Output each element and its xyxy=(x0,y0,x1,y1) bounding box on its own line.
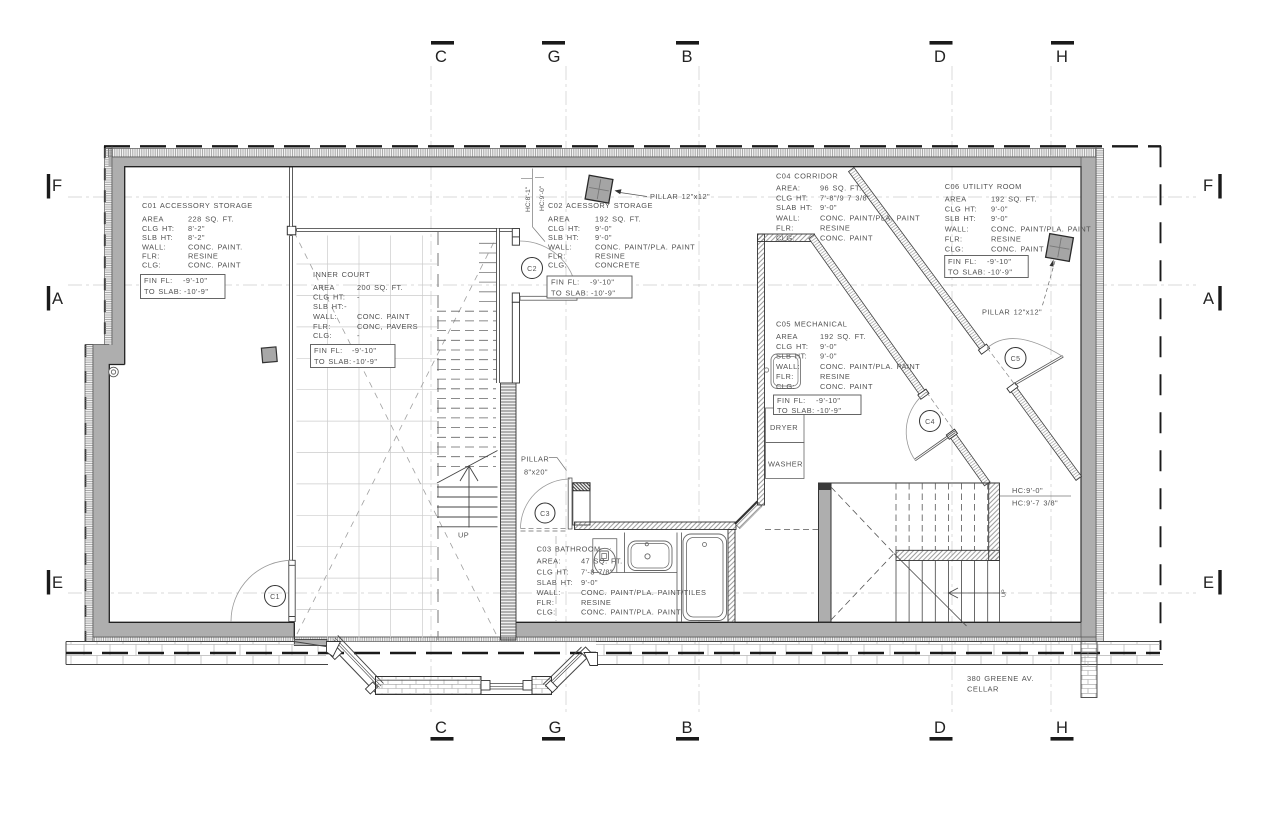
svg-text:CLG HT:: CLG HT: xyxy=(945,205,977,214)
svg-text:CLG:: CLG: xyxy=(776,382,795,391)
svg-text:G: G xyxy=(549,719,562,737)
svg-text:E: E xyxy=(1203,574,1214,592)
svg-text:AREA: AREA xyxy=(945,195,967,204)
svg-text:9'-0": 9'-0" xyxy=(820,352,837,361)
svg-text:FLR:: FLR: xyxy=(313,322,331,331)
svg-text:FIN FL:: FIN FL: xyxy=(144,276,173,285)
svg-text:HC:8'-1": HC:8'-1" xyxy=(525,186,532,212)
svg-text:CONC. PAINT: CONC. PAINT xyxy=(357,312,410,321)
svg-text:DRYER: DRYER xyxy=(770,423,798,432)
svg-text:CLG HT:: CLG HT: xyxy=(776,342,808,351)
svg-text:C: C xyxy=(435,719,447,737)
svg-text:UP: UP xyxy=(1002,589,1008,597)
svg-text:SLB HT:: SLB HT: xyxy=(776,352,807,361)
svg-text:CLG:: CLG: xyxy=(776,234,795,243)
svg-text:TO SLAB:: TO SLAB: xyxy=(948,268,986,277)
svg-text:A: A xyxy=(1203,290,1214,308)
svg-text:CLG HT:: CLG HT: xyxy=(142,224,174,233)
svg-text:-10'-9": -10'-9" xyxy=(817,406,841,415)
svg-text:C01 ACCESSORY STORAGE: C01 ACCESSORY STORAGE xyxy=(142,201,253,210)
svg-text:C05 MECHANICAL: C05 MECHANICAL xyxy=(776,320,847,329)
svg-text:-10'-9": -10'-9" xyxy=(988,268,1012,277)
svg-text:FIN FL:: FIN FL: xyxy=(551,278,580,287)
svg-text:SLAB HT:: SLAB HT: xyxy=(537,578,574,587)
svg-text:-9'-10": -9'-10" xyxy=(352,346,376,355)
svg-text:HC:9'-0": HC:9'-0" xyxy=(1012,486,1043,495)
svg-text:9'-0": 9'-0" xyxy=(581,578,598,587)
svg-text:228 SQ. FT.: 228 SQ. FT. xyxy=(188,215,234,224)
svg-text:PILLAR: PILLAR xyxy=(521,455,549,464)
svg-text:C2: C2 xyxy=(527,266,537,273)
svg-text:CLG:: CLG: xyxy=(945,245,964,254)
svg-text:CONC. PAINT/PLA. PAINT/TILES: CONC. PAINT/PLA. PAINT/TILES xyxy=(581,588,706,597)
svg-text:47 SQ. FT.: 47 SQ. FT. xyxy=(581,557,623,566)
svg-text:-10'-9": -10'-9" xyxy=(591,289,615,298)
svg-text:FLR:: FLR: xyxy=(142,252,160,261)
svg-text:HC:9'-7 3/8": HC:9'-7 3/8" xyxy=(1012,499,1058,508)
svg-text:TO SLAB:: TO SLAB: xyxy=(551,289,589,298)
svg-text:RESINE: RESINE xyxy=(188,252,218,261)
svg-text:CLG:: CLG: xyxy=(537,608,556,617)
svg-text:WALL:: WALL: xyxy=(548,243,572,252)
svg-text:WALL:: WALL: xyxy=(945,225,969,234)
svg-text:CONC. PAINT/PLA. PAINT: CONC. PAINT/PLA. PAINT xyxy=(991,225,1091,234)
svg-text:CONC. PAINT: CONC. PAINT xyxy=(188,261,241,270)
svg-text:SLB HT:: SLB HT: xyxy=(945,214,976,223)
svg-text:FLR:: FLR: xyxy=(945,235,963,244)
svg-text:CELLAR: CELLAR xyxy=(967,685,999,694)
svg-text:B: B xyxy=(681,48,692,66)
svg-text:AREA: AREA xyxy=(548,215,570,224)
svg-text:FLR:: FLR: xyxy=(776,224,794,233)
svg-text:C04 CORRIDOR: C04 CORRIDOR xyxy=(776,172,838,181)
svg-text:7'-8"/9 7 3/8": 7'-8"/9 7 3/8" xyxy=(820,194,870,203)
svg-text:-: - xyxy=(357,331,360,340)
svg-text:WALL:: WALL: xyxy=(537,588,561,597)
svg-text:CONCRETE: CONCRETE xyxy=(595,261,640,270)
svg-text:C06 UTILITY ROOM: C06 UTILITY ROOM xyxy=(945,182,1022,191)
svg-text:C1: C1 xyxy=(270,594,280,601)
svg-text:FIN FL:: FIN FL: xyxy=(948,257,977,266)
svg-text:FLR:: FLR: xyxy=(537,598,555,607)
svg-text:-9'-10": -9'-10" xyxy=(183,276,207,285)
svg-text:WASHER: WASHER xyxy=(768,460,803,469)
svg-text:CLG HT:: CLG HT: xyxy=(548,224,580,233)
svg-text:9'-0": 9'-0" xyxy=(820,203,837,212)
svg-text:380 GREENE AV.: 380 GREENE AV. xyxy=(967,674,1034,683)
svg-text:-9'-10": -9'-10" xyxy=(590,278,614,287)
svg-text:TO SLAB:: TO SLAB: xyxy=(314,357,352,366)
svg-text:FIN FL:: FIN FL: xyxy=(314,346,343,355)
svg-text:RESINE: RESINE xyxy=(595,252,625,261)
svg-text:E: E xyxy=(52,574,63,592)
svg-text:TO SLAB:: TO SLAB: xyxy=(777,406,815,415)
svg-text:-9'-10": -9'-10" xyxy=(987,257,1011,266)
svg-text:AREA:: AREA: xyxy=(537,557,561,566)
svg-text:PILLAR 12"x12": PILLAR 12"x12" xyxy=(650,192,710,201)
svg-text:CLG:: CLG: xyxy=(313,331,332,340)
svg-text:H: H xyxy=(1056,48,1068,66)
svg-text:FLR:: FLR: xyxy=(548,252,566,261)
svg-text:HC:9'-0": HC:9'-0" xyxy=(539,185,546,211)
svg-text:C02 ACESSORY STORAGE: C02 ACESSORY STORAGE xyxy=(548,201,653,210)
svg-text:192 SQ. FT.: 192 SQ. FT. xyxy=(820,332,866,341)
svg-text:RESINE: RESINE xyxy=(581,598,611,607)
svg-text:D: D xyxy=(934,719,946,737)
svg-text:TO SLAB:: TO SLAB: xyxy=(144,287,182,296)
svg-text:C03 BATHROOM: C03 BATHROOM xyxy=(537,545,601,554)
svg-text:9'-0": 9'-0" xyxy=(991,205,1008,214)
svg-text:8'-2": 8'-2" xyxy=(188,224,205,233)
svg-text:CONC. PAINT: CONC. PAINT xyxy=(820,382,873,391)
svg-text:F: F xyxy=(1203,177,1213,195)
svg-text:8'-2": 8'-2" xyxy=(188,233,205,242)
svg-text:RESINE: RESINE xyxy=(991,235,1021,244)
svg-text:192 SQ. FT.: 192 SQ. FT. xyxy=(595,215,641,224)
svg-text:AREA: AREA xyxy=(142,215,164,224)
svg-text:RESINE: RESINE xyxy=(820,372,850,381)
svg-text:7'-8 7/8": 7'-8 7/8" xyxy=(581,568,613,577)
svg-text:CONC, PAVERS: CONC, PAVERS xyxy=(357,322,418,331)
svg-text:CLG HT:: CLG HT: xyxy=(313,293,345,302)
svg-text:H: H xyxy=(1056,719,1068,737)
svg-text:8"x20": 8"x20" xyxy=(524,468,548,477)
svg-text:FIN FL:: FIN FL: xyxy=(777,396,806,405)
svg-text:C5: C5 xyxy=(1011,356,1021,363)
svg-text:WALL:: WALL: xyxy=(776,214,800,223)
svg-text:9'-0": 9'-0" xyxy=(820,342,837,351)
svg-text:PILLAR 12"x12": PILLAR 12"x12" xyxy=(982,308,1042,317)
svg-text:WALL:: WALL: xyxy=(776,362,800,371)
svg-text:-10'-9": -10'-9" xyxy=(353,357,377,366)
svg-text:CONC. PAINT/PLA. PAINT: CONC. PAINT/PLA. PAINT xyxy=(820,214,920,223)
svg-text:96 SQ. FT.: 96 SQ. FT. xyxy=(820,184,862,193)
svg-text:-: - xyxy=(357,293,360,302)
svg-text:FLR:: FLR: xyxy=(776,372,794,381)
svg-text:192 SQ. FT.: 192 SQ. FT. xyxy=(991,195,1037,204)
svg-text:CLG:: CLG: xyxy=(548,261,567,270)
svg-text:9'-0": 9'-0" xyxy=(595,233,612,242)
svg-text:CONC. PAINT/PLA. PAINT: CONC. PAINT/PLA. PAINT xyxy=(595,243,695,252)
svg-text:CLG:: CLG: xyxy=(142,261,161,270)
svg-text:CLG HT:: CLG HT: xyxy=(776,194,808,203)
svg-text:RESINE: RESINE xyxy=(820,224,850,233)
svg-text:9'-0": 9'-0" xyxy=(595,224,612,233)
svg-text:CONC. PAINT/PLA. PAINT: CONC. PAINT/PLA. PAINT xyxy=(581,608,681,617)
svg-text:C3: C3 xyxy=(540,511,550,518)
svg-text:B: B xyxy=(681,719,692,737)
svg-text:CONC. PAINT: CONC. PAINT xyxy=(991,245,1044,254)
svg-text:C: C xyxy=(435,48,447,66)
svg-text:SLAB HT:: SLAB HT: xyxy=(776,203,813,212)
svg-text:CONC. PAINT.: CONC. PAINT. xyxy=(188,243,243,252)
svg-text:CONC. PAINT: CONC. PAINT xyxy=(820,234,873,243)
svg-text:C4: C4 xyxy=(925,419,935,426)
svg-text:D: D xyxy=(934,48,946,66)
svg-text:AREA: AREA xyxy=(313,283,335,292)
svg-text:CLG HT:: CLG HT: xyxy=(537,568,569,577)
svg-text:G: G xyxy=(548,48,561,66)
svg-text:WALL:: WALL: xyxy=(313,312,337,321)
svg-text:INNER COURT: INNER COURT xyxy=(313,270,370,279)
svg-text:9'-0": 9'-0" xyxy=(991,214,1008,223)
svg-text:SLB HT:-: SLB HT:- xyxy=(313,302,347,311)
svg-text:-9'-10": -9'-10" xyxy=(816,396,840,405)
svg-text:AREA:: AREA: xyxy=(776,184,800,193)
svg-text:SLB HT:: SLB HT: xyxy=(548,233,579,242)
svg-text:-10'-9": -10'-9" xyxy=(184,287,208,296)
svg-text:F: F xyxy=(52,177,62,195)
svg-text:200 SQ. FT.: 200 SQ. FT. xyxy=(357,283,403,292)
svg-text:WALL:: WALL: xyxy=(142,243,166,252)
svg-text:UP: UP xyxy=(458,531,469,540)
svg-text:A: A xyxy=(52,290,63,308)
svg-text:AREA: AREA xyxy=(776,332,798,341)
svg-text:SLB HT:: SLB HT: xyxy=(142,233,173,242)
svg-text:CONC. PAINT/PLA. PAINT: CONC. PAINT/PLA. PAINT xyxy=(820,362,920,371)
